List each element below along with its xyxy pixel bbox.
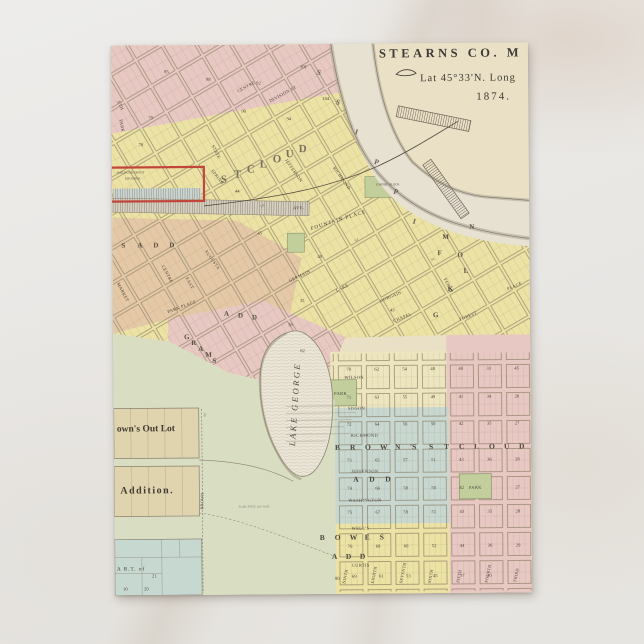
city-name-letters-1: T [234, 169, 242, 181]
grid-numbers-row7-0: 76 [348, 544, 353, 549]
part-number: 10 [123, 587, 128, 592]
s-add-letters-1: A [137, 241, 142, 249]
bowes-letters-3: E [365, 533, 370, 542]
s-add-letters-2: D [153, 241, 158, 249]
add-letters-1: D [369, 475, 375, 484]
stcloud-letters-5: U [504, 442, 510, 451]
grid-numbers-row7-5: 36 [488, 543, 493, 548]
grid-numbers-row4-0: 73 [347, 458, 352, 463]
bowes-letters-1: O [335, 533, 341, 542]
stcloud-letters-6: D [519, 441, 525, 450]
add-letters-pink-0: A [224, 310, 229, 318]
part-number: 20 [144, 586, 149, 591]
courthouse-square [287, 233, 304, 252]
grid-numbers-row7-6: 29 [516, 542, 521, 547]
grid-numbers-row7-4: 44 [460, 543, 465, 548]
grid-numbers-row1-2: 54 [402, 366, 407, 371]
grid-numbers-row8-0: 69 [352, 574, 357, 579]
browns-letters-2: O [365, 443, 371, 452]
street-wilson: WILSON [344, 375, 364, 380]
city-name-letters-6: D [299, 143, 307, 155]
grams-add-letters-0: G [184, 333, 190, 341]
grid-numbers-row4-2: 57 [403, 457, 408, 462]
map-title: STEARNS CO. M [379, 45, 522, 60]
grid-numbers-row3-6: 27 [515, 420, 520, 425]
stcloud-letters-2: C [459, 442, 464, 451]
block-number: 92 [256, 80, 261, 85]
grid-numbers-row2-5: 34 [487, 394, 492, 399]
scale-note: Scale 300 ft. per inch. [238, 504, 270, 508]
city-name-letters-3: L [260, 158, 267, 170]
grid-numbers-row4-4: 43 [459, 457, 464, 462]
grid-numbers-row4-6: 28 [515, 456, 520, 461]
browns-letters-0: B [335, 443, 340, 452]
ave-label: AVE. [293, 205, 304, 210]
empire-block-label: EMPIRE BLOCK [376, 182, 400, 186]
map-canvas: STEARNS CO. M Lat 45°33'N. Long 1874. SS… [111, 42, 532, 595]
grid-numbers-row5-2: 58 [403, 485, 408, 490]
grid-numbers-row8-1: 61 [379, 574, 384, 579]
block-number: 101 [300, 64, 308, 69]
grid-numbers-row5-4: 42 [459, 485, 464, 490]
grid-numbers-row2-1: 63 [375, 395, 380, 400]
depot-label-line1: RAILROAD DEPOT [117, 170, 145, 174]
block-number: 79 [148, 115, 153, 120]
grid-numbers-row4-3: 51 [431, 457, 436, 462]
grid-numbers-row2-6: 26 [515, 393, 520, 398]
grid-numbers-row6-5: 35 [487, 509, 492, 514]
grid-numbers-row8-3: 45 [433, 573, 438, 578]
grid-numbers-row6-1: 67 [375, 510, 380, 515]
grid-numbers-row3-2: 56 [403, 421, 408, 426]
block-number: 62 [300, 348, 305, 353]
city-name-letters-2: C [247, 164, 255, 176]
grid-numbers-row2-4: 41 [459, 394, 464, 399]
lower-grid [326, 334, 532, 594]
grid-numbers-row8-5: 30 [487, 573, 492, 578]
street-jefferson: JEFFERSON [351, 469, 379, 474]
bowes-add-letters-0: A [332, 552, 338, 561]
s-add-letters-0: S [121, 242, 125, 250]
grid-numbers-row3-3: 50 [431, 421, 436, 426]
grid-numbers-row3-5: 35 [487, 421, 492, 426]
grid-numbers-row5-6: 27 [515, 484, 520, 489]
browns-letters-5: 'S [410, 442, 416, 451]
street-washington: WASHINGTON [348, 498, 382, 503]
street-wells: WELL'S [352, 526, 370, 531]
grid-numbers-row6-6: 28 [515, 508, 520, 513]
addition-label: Addition. [120, 485, 174, 496]
bowes-letters-0: B [320, 533, 325, 542]
block-letter: M [442, 233, 449, 241]
grid-numbers-row5-3: 50 [431, 485, 436, 490]
grid-numbers-row1-4: 40 [458, 366, 463, 371]
block-number: 35 [300, 298, 305, 303]
block-number: 44 [235, 189, 240, 194]
grid-numbers-row7-3: 52 [432, 543, 437, 548]
block-number: 90 [241, 109, 246, 114]
grid-numbers-row1-3: 48 [430, 366, 435, 371]
grid-numbers-row7-2: 60 [404, 543, 409, 548]
park-label-2: PARK [469, 485, 482, 490]
grid-numbers-row6-0: 75 [347, 510, 352, 515]
lat-long-label: Lat 45°33'N. Long [420, 72, 516, 84]
part-of-label: A R.T. of [117, 565, 145, 572]
grid-numbers-row2-2: 55 [403, 394, 408, 399]
bowes-add-letters-1: D [346, 552, 352, 561]
street-sisson: SISSON [348, 406, 366, 411]
grid-number-80: 80 [335, 576, 340, 581]
block-letter: N [469, 223, 474, 231]
grid-numbers-row2-0: 71 [347, 395, 352, 400]
browns-letters-4: N [395, 442, 401, 451]
street-curtis: CURTIS [352, 563, 370, 568]
bowes-add-letters: ADD [332, 552, 366, 561]
stcloud-letters-1: T [444, 442, 449, 451]
grid-numbers-row7-1: 68 [376, 544, 381, 549]
grid-numbers-row1-1: 62 [374, 367, 379, 372]
block-number: 49 [317, 254, 322, 259]
add-letters-pink-1: D [238, 312, 243, 320]
bowes-letters-4: S [380, 533, 384, 542]
grid-numbers-row6-3: 51 [431, 509, 436, 514]
block-letter: O [457, 251, 463, 259]
depot-siding-ties [113, 188, 201, 200]
depot-label-line2: GROUNDS [125, 176, 141, 180]
block-number: 85 [164, 69, 169, 74]
block-letter: F [437, 249, 441, 257]
block-letter: K [448, 285, 454, 293]
browns-letters-1: R [350, 443, 356, 452]
grid-numbers-row8-4: 37 [460, 573, 465, 578]
grid-numbers-row6-4: 43 [459, 509, 464, 514]
grams-add-letters-4: S [212, 357, 216, 365]
postcard-map-st-cloud[interactable]: STEARNS CO. M Lat 45°33'N. Long 1874. SS… [111, 42, 532, 595]
brown-street-st: ST [203, 413, 208, 417]
part-number: 21 [152, 573, 157, 578]
park-label-1: PARK [334, 391, 347, 396]
block-number: 94 [286, 116, 291, 121]
add-letters-pink-2: D [252, 314, 257, 322]
grid-numbers-row1-6: 45 [514, 365, 519, 370]
city-name-letters-4: O [273, 153, 282, 165]
grid-numbers-row5-0: 74 [347, 486, 352, 491]
grams-add-letters-3: M [205, 351, 212, 359]
block-number: 38 [288, 322, 293, 327]
block-letter: G [433, 311, 439, 319]
grid-numbers-row1-5: 33 [486, 366, 491, 371]
grid-numbers-row3-0: 72 [347, 422, 352, 427]
stcloud-letters-0: S [429, 442, 433, 451]
block-number: 45 [257, 230, 262, 235]
grid-numbers-row4-5: 36 [487, 457, 492, 462]
block-number: 104 [322, 96, 330, 101]
grid-numbers-row2-3: 49 [431, 394, 436, 399]
stcloud-letters-3: L [474, 442, 479, 451]
bowes-add-letters-2: D [360, 552, 366, 561]
block-number: 43 [390, 307, 395, 312]
stcloud-letters-4: O [489, 442, 495, 451]
bowes-letters-2: W [350, 533, 358, 542]
grid-numbers-row4-1: 65 [375, 458, 380, 463]
grid-numbers-row6-2: 59 [403, 509, 408, 514]
browns-letters-3: W [380, 442, 388, 451]
year-label: 1874. [476, 91, 511, 103]
block-number: 78 [139, 142, 144, 147]
grid-numbers-row3-4: 42 [459, 421, 464, 426]
block-number: 88 [206, 77, 211, 82]
grid-numbers-row3-1: 64 [375, 422, 380, 427]
out-lot-label: own's Out Lot [117, 424, 176, 434]
grid-numbers-row8-2: 53 [406, 573, 411, 578]
grams-add-letters-2: A [198, 345, 203, 353]
street-richmond: RICHMOND [351, 433, 378, 438]
add-letters-0: A [353, 475, 359, 484]
grid-numbers-row5-1: 66 [375, 486, 380, 491]
grid-numbers-row1-0: 70 [346, 367, 351, 372]
brown-street-label: BROWN [199, 492, 204, 509]
add-letters-2: D [385, 474, 391, 483]
s-add-letters-3: D [169, 241, 174, 249]
block-letter: L [464, 267, 469, 275]
